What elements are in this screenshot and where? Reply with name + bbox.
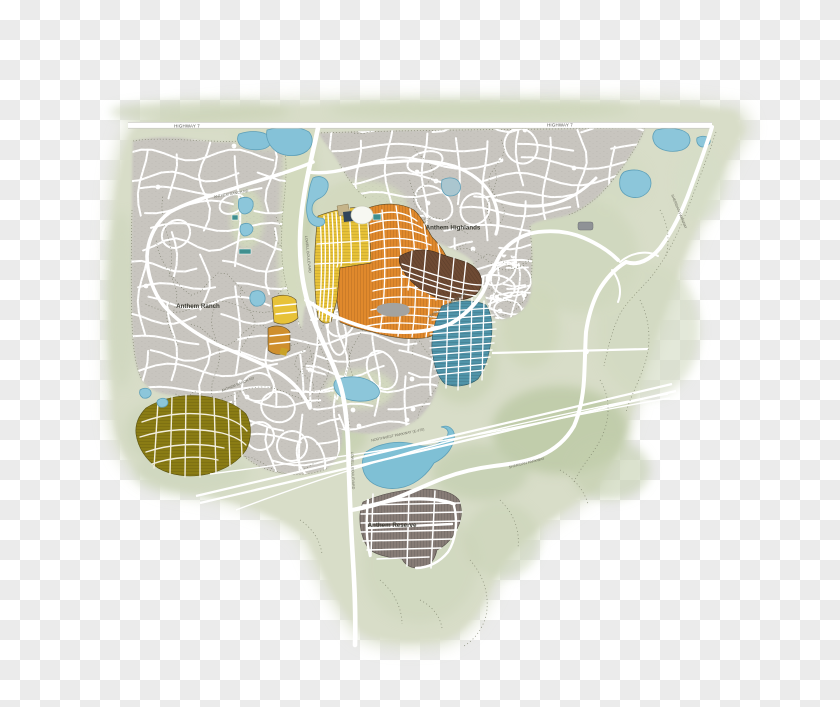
svg-text:Anthem Reserve: Anthem Reserve xyxy=(368,522,417,529)
svg-text:Anthem Ranch: Anthem Ranch xyxy=(176,303,220,310)
svg-text:HIGHWAY 7: HIGHWAY 7 xyxy=(547,122,573,127)
svg-text:HIGHWAY 7: HIGHWAY 7 xyxy=(174,123,200,128)
svg-text:Anthem Highlands: Anthem Highlands xyxy=(426,225,481,232)
